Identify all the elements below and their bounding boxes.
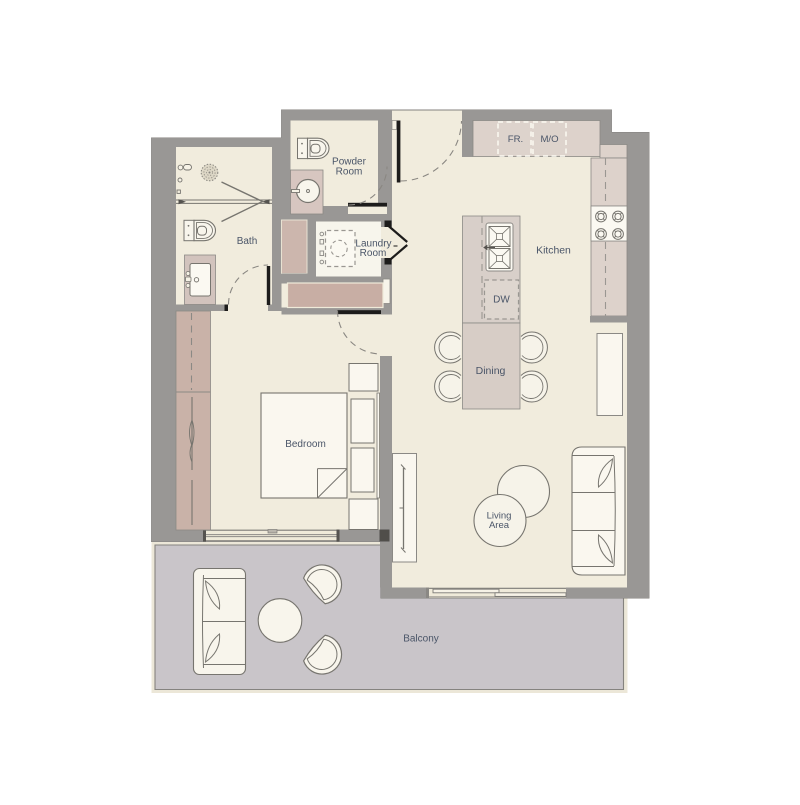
svg-text:Balcony: Balcony — [403, 634, 439, 645]
svg-text:FR.: FR. — [508, 134, 523, 145]
svg-text:Kitchen: Kitchen — [536, 246, 571, 257]
svg-text:Dining: Dining — [476, 365, 506, 377]
svg-text:Area: Area — [489, 520, 510, 531]
svg-text:Bath: Bath — [237, 236, 258, 247]
svg-text:M/O: M/O — [540, 134, 558, 145]
svg-text:DW: DW — [493, 295, 510, 306]
svg-text:Bedroom: Bedroom — [285, 439, 326, 450]
svg-text:Room: Room — [360, 248, 387, 259]
svg-text:Room: Room — [336, 167, 363, 178]
